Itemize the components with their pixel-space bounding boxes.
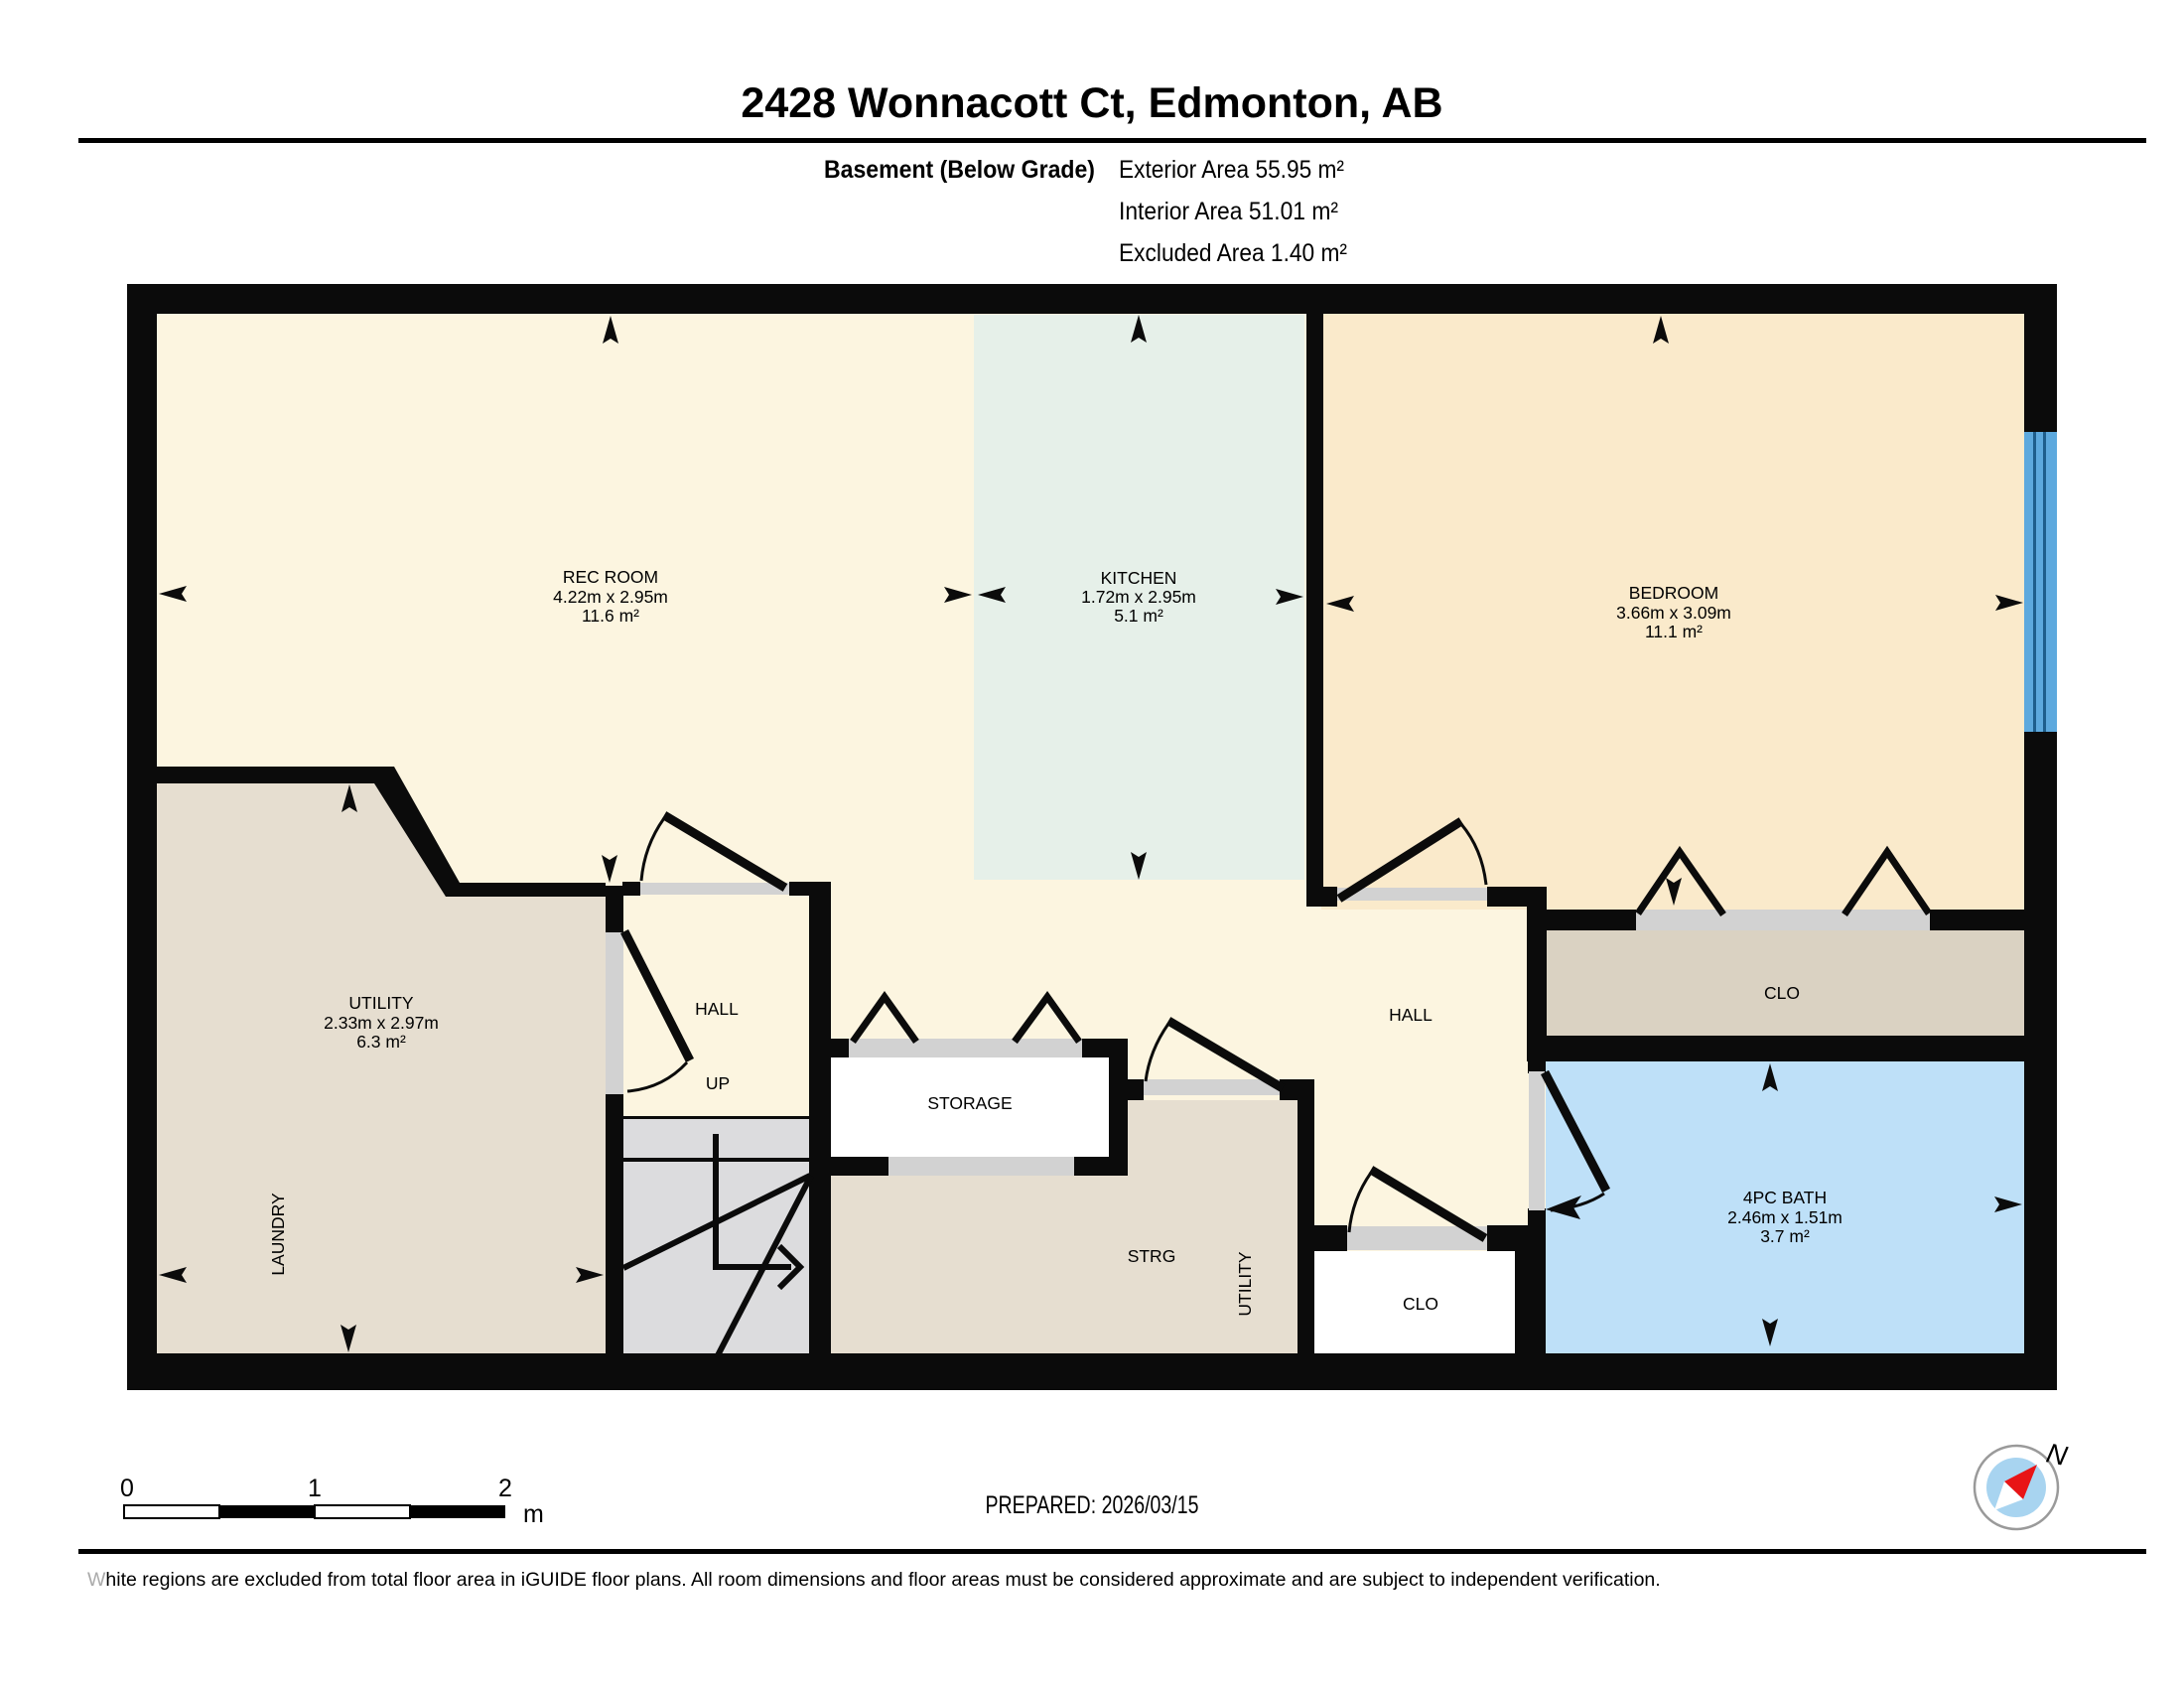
- svg-text:Interior Area 51.01 m²: Interior Area 51.01 m²: [1119, 198, 1338, 225]
- svg-text:PREPARED: 2026/03/15: PREPARED: 2026/03/15: [986, 1491, 1199, 1519]
- svg-text:3.66m x 3.09m: 3.66m x 3.09m: [1616, 603, 1731, 623]
- svg-text:CLO: CLO: [1403, 1294, 1438, 1314]
- svg-text:11.1 m²: 11.1 m²: [1645, 622, 1703, 641]
- svg-text:2428 Wonnacott Ct, Edmonton, A: 2428 Wonnacott Ct, Edmonton, AB: [741, 79, 1442, 127]
- svg-text:Excluded Area 1.40 m²: Excluded Area 1.40 m²: [1119, 239, 1347, 267]
- svg-text:UP: UP: [706, 1073, 730, 1093]
- svg-text:m: m: [523, 1500, 544, 1528]
- svg-text:2.33m x 2.97m: 2.33m x 2.97m: [324, 1013, 439, 1033]
- svg-text:HALL: HALL: [1389, 1005, 1433, 1025]
- svg-text:3.7 m²: 3.7 m²: [1760, 1226, 1810, 1246]
- svg-text:2.46m x 1.51m: 2.46m x 1.51m: [1727, 1207, 1843, 1227]
- svg-text:LAUNDRY: LAUNDRY: [268, 1193, 288, 1276]
- svg-text:White regions are excluded fro: White regions are excluded from total fl…: [87, 1569, 1661, 1591]
- svg-text:Exterior Area 55.95 m²: Exterior Area 55.95 m²: [1119, 156, 1344, 184]
- svg-text:STRG: STRG: [1128, 1246, 1176, 1266]
- svg-text:REC ROOM: REC ROOM: [563, 567, 658, 587]
- svg-text:4.22m x 2.95m: 4.22m x 2.95m: [553, 587, 668, 607]
- svg-text:4PC BATH: 4PC BATH: [1743, 1188, 1827, 1207]
- svg-text:UTILITY: UTILITY: [1235, 1251, 1255, 1316]
- svg-text:2: 2: [498, 1475, 512, 1502]
- svg-text:BEDROOM: BEDROOM: [1629, 583, 1718, 603]
- svg-text:1: 1: [308, 1475, 322, 1502]
- svg-text:0: 0: [120, 1475, 134, 1502]
- svg-text:HALL: HALL: [695, 999, 739, 1019]
- svg-text:5.1 m²: 5.1 m²: [1114, 606, 1163, 626]
- svg-text:UTILITY: UTILITY: [348, 993, 413, 1013]
- svg-text:KITCHEN: KITCHEN: [1101, 568, 1177, 588]
- svg-text:6.3 m²: 6.3 m²: [356, 1032, 406, 1052]
- svg-text:CLO: CLO: [1764, 983, 1800, 1003]
- svg-text:11.6 m²: 11.6 m²: [582, 606, 639, 626]
- svg-text:STORAGE: STORAGE: [927, 1093, 1012, 1113]
- svg-text:Basement (Below Grade): Basement (Below Grade): [824, 156, 1095, 184]
- svg-text:1.72m x 2.95m: 1.72m x 2.95m: [1081, 587, 1196, 607]
